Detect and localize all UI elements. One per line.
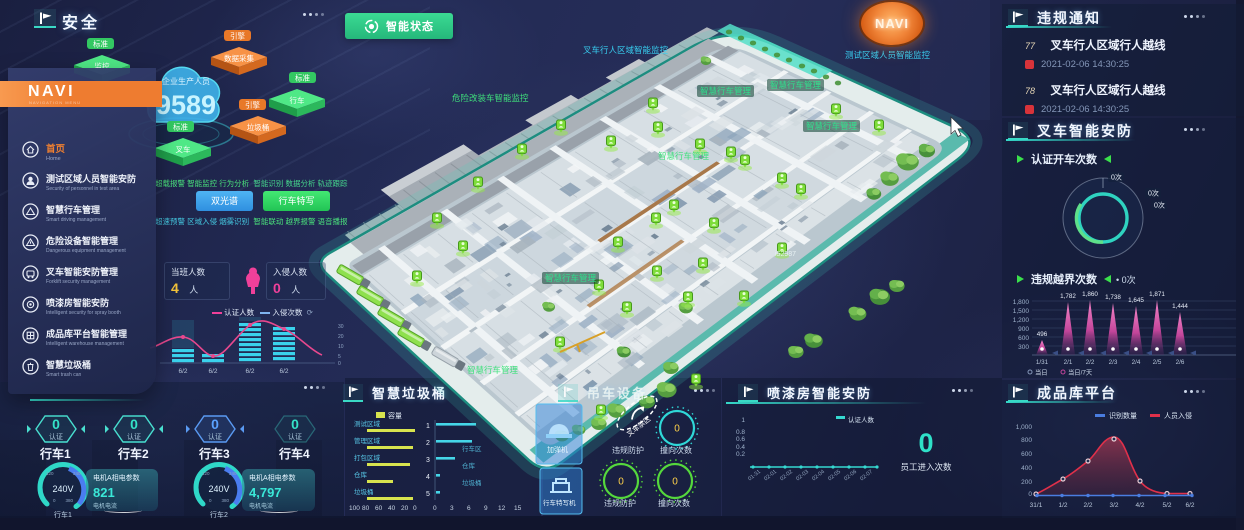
svg-text:数据采集: 数据采集 [224, 53, 254, 63]
svg-text:引擎: 引擎 [230, 31, 245, 41]
svg-text:智慧行车管理: 智慧行车管理 [700, 86, 752, 96]
svg-text:6/2: 6/2 [279, 368, 288, 375]
svg-text:30: 30 [338, 324, 344, 330]
svg-text:危险改装车智能监控: 危险改装车智能监控 [452, 93, 529, 103]
svg-text:企业生产人员: 企业生产人员 [162, 76, 210, 86]
svg-text:i52987: i52987 [775, 251, 796, 258]
svg-text:行车: 行车 [290, 95, 305, 105]
svg-text:20: 20 [338, 334, 344, 340]
svg-text:智慧行车管理: 智慧行车管理 [806, 121, 858, 131]
svg-text:6/2: 6/2 [178, 368, 187, 375]
svg-text:10: 10 [338, 344, 344, 350]
svg-text:6/2: 6/2 [245, 368, 254, 375]
svg-text:9589: 9589 [156, 90, 216, 120]
svg-text:智慧行车管理: 智慧行车管理 [658, 151, 710, 161]
svg-text:标准: 标准 [173, 122, 188, 132]
svg-text:叉车行人区域智能监控: 叉车行人区域智能监控 [583, 45, 669, 55]
svg-text:加弹机: 加弹机 [547, 445, 568, 454]
svg-text:叉车: 叉车 [176, 144, 191, 154]
svg-text:行车特写机: 行车特写机 [543, 498, 576, 507]
svg-text:0: 0 [338, 361, 341, 367]
svg-text:智慧行车管理: 智慧行车管理 [770, 80, 822, 90]
svg-text:标准: 标准 [295, 73, 310, 83]
svg-text:标准: 标准 [93, 39, 108, 49]
svg-text:引擎: 引擎 [245, 100, 260, 110]
svg-text:智慧行车管理: 智慧行车管理 [467, 365, 519, 375]
svg-text:垃圾桶: 垃圾桶 [247, 122, 270, 132]
svg-text:6/2: 6/2 [208, 368, 217, 375]
svg-text:5: 5 [338, 354, 341, 360]
svg-text:测试区域人员智能监控: 测试区域人员智能监控 [845, 50, 931, 60]
svg-text:智慧行车管理: 智慧行车管理 [545, 273, 597, 283]
